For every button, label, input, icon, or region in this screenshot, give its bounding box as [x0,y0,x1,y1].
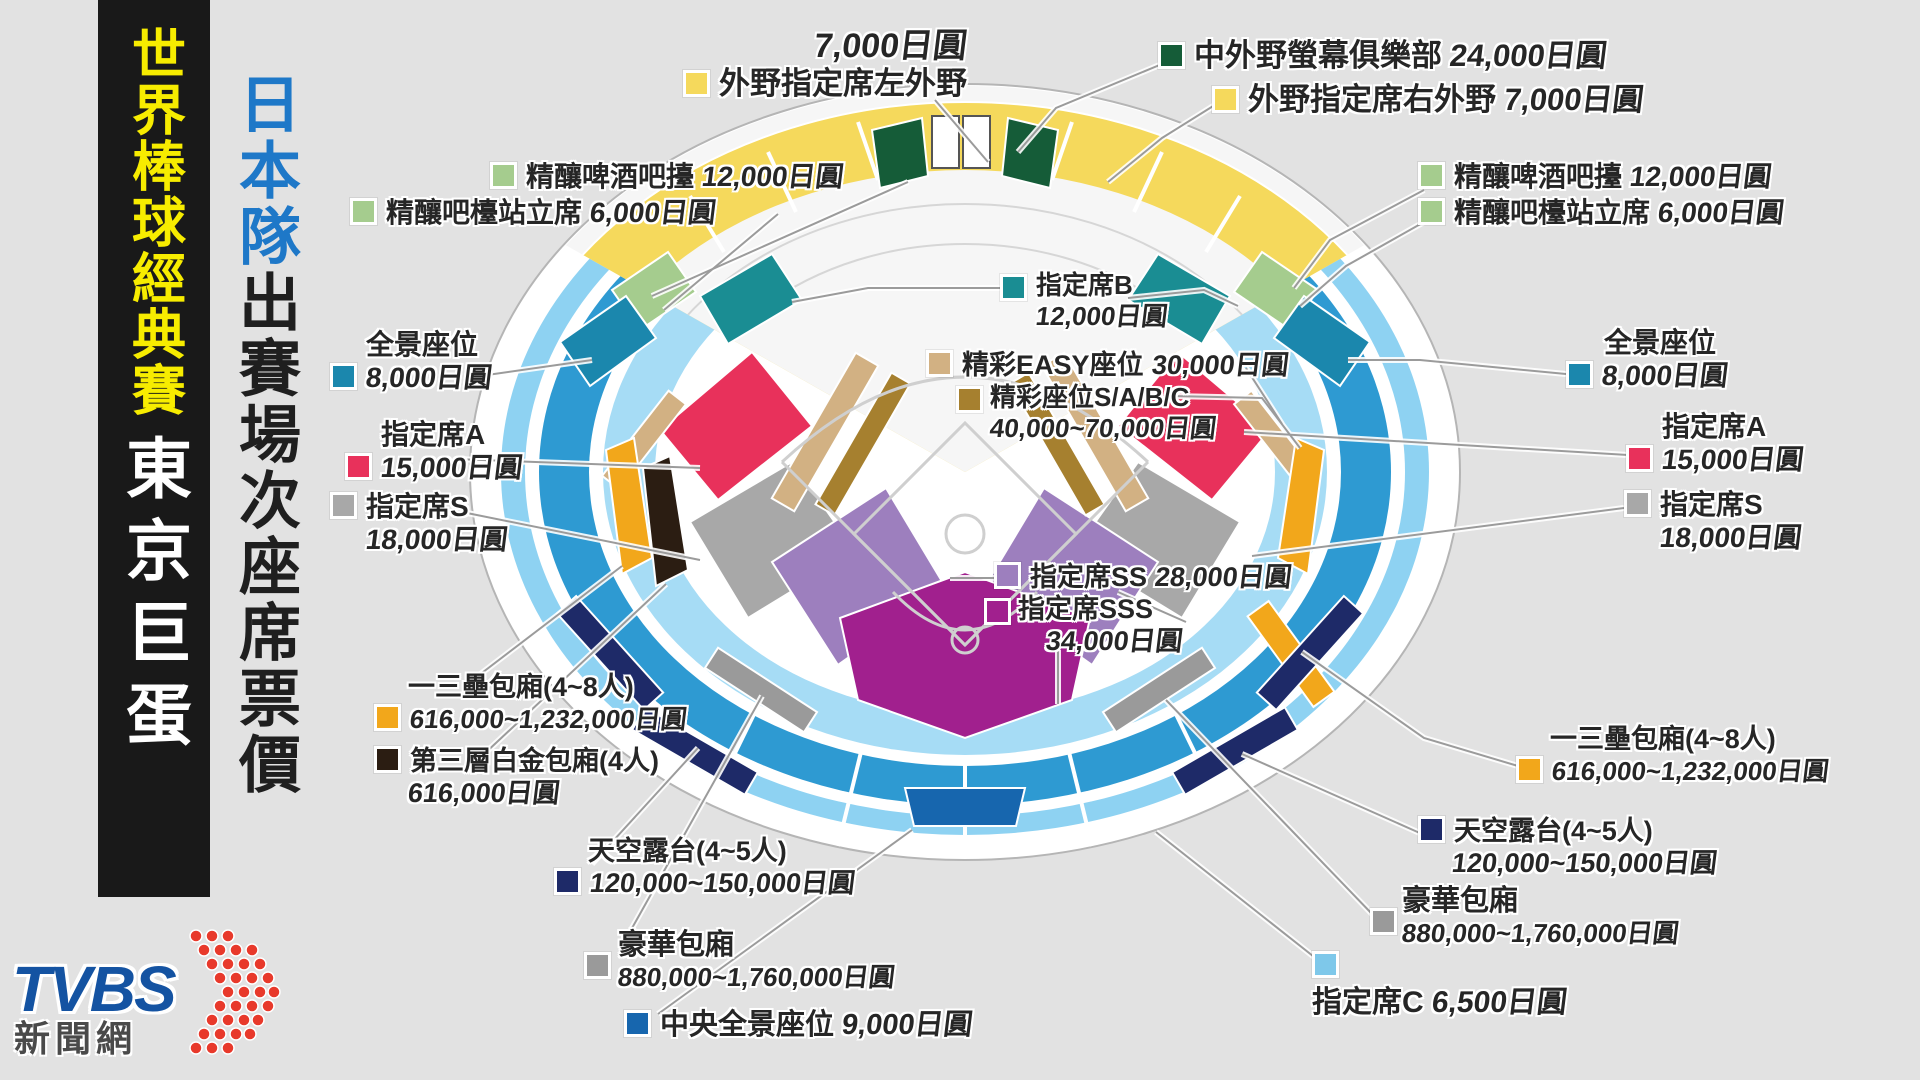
label-pano-left: 全景座位 8,000日圓 [330,328,492,394]
platinum-box-price: 616,000日圓 [406,778,562,810]
beer-bar-right-name: 精釀啤酒吧擡 [1454,161,1622,192]
beer-stand-right-price: 6,000日圓 [1656,196,1786,229]
label-seat-a-right: 指定席A 15,000日圓 [1626,410,1804,476]
seat-a-left-name: 指定席A [381,419,485,450]
central-pano-swatch [624,1010,651,1037]
zone-central-pano [905,788,1025,826]
beer-bar-left-price: 12,000日圓 [700,160,846,193]
label-seat-s-left: 指定席S 18,000日圓 [330,490,508,556]
label-seat-s-right: 指定席S 18,000日圓 [1624,488,1802,554]
label-beer-bar-left: 精釀啤酒吧擡12,000日圓 [490,160,844,193]
box13-left-price: 616,000~1,232,000日圓 [408,704,689,735]
lux-left-name: 豪華包廂 [618,929,734,961]
pano-left-name: 全景座位 [366,329,478,360]
seat-ss-name: 指定席SS [1030,562,1147,592]
pano-left-swatch [330,363,357,390]
tvbs-dots-icon [162,924,282,1064]
lf-outfield-swatch [683,70,710,97]
easy-seat-name: 精彩EASY座位 [962,350,1144,380]
seat-c-swatch [1312,951,1339,978]
seat-s-left-swatch [330,492,357,519]
seat-sss-price: 34,000日圓 [1044,626,1185,658]
sabc-seat-price: 40,000~70,000日圓 [988,413,1218,444]
title-bar: 世界棒球經典賽 東京巨蛋 [98,0,210,897]
box13-left-swatch [374,704,401,731]
seat-b-swatch [1000,274,1027,301]
page-title: 世界棒球經典賽 [115,26,194,418]
label-box13-right: 一三壘包廂(4~8人) 616,000~1,232,000日圓 [1516,724,1829,787]
pano-left-price: 8,000日圓 [364,361,494,394]
zone-screen-club-left [872,118,928,188]
tvbs-site-text: 新聞網 [14,1010,137,1062]
team-name: 日本隊 [229,72,298,270]
beer-stand-left-name: 精釀吧檯站立席 [386,197,582,228]
tvbs-logo: TVBS 新聞網 [12,944,312,1074]
seat-b-name: 指定席B [1036,270,1133,300]
beer-stand-left-price: 6,000日圓 [588,196,718,229]
platinum-box-swatch [374,746,401,773]
label-lux-left: 豪華包廂 880,000~1,760,000日圓 [584,928,895,993]
box13-left-name: 一三壘包廂(4~8人) [408,672,634,702]
sky-right-name: 天空露台(4~5人) [1454,816,1653,846]
label-beer-stand-left: 精釀吧檯站立席6,000日圓 [350,196,716,229]
box13-right-name: 一三壘包廂(4~8人) [1550,724,1776,754]
box13-right-price: 616,000~1,232,000日圓 [1550,756,1831,787]
label-seat-b: 指定席B 12,000日圓 [1000,270,1168,331]
label-lf-outfield: 7,000日圓 外野指定席左外野 [683,26,967,103]
beer-bar-left-swatch [490,162,517,189]
seat-c-name: 指定席C [1312,986,1424,1019]
seat-ss-swatch [994,562,1021,589]
beer-stand-right-swatch [1418,198,1445,225]
seat-s-left-price: 18,000日圓 [364,523,510,556]
pano-right-swatch [1566,361,1593,388]
label-screen-club: 中外野螢幕俱樂部24,000日圓 [1158,38,1607,75]
sky-left-price: 120,000~150,000日圓 [588,868,857,900]
sabc-seat-name: 精彩座位S/A/B/C [990,382,1189,412]
rf-outfield-price: 7,000日圓 [1502,82,1646,119]
seat-s-left-name: 指定席S [366,491,469,522]
label-seat-a-left: 指定席A 15,000日圓 [345,418,523,484]
pano-right-name: 全景座位 [1604,327,1716,358]
label-sky-right: 天空露台(4~5人) 120,000~150,000日圓 [1418,816,1717,880]
label-seat-sss: 指定席SSS 34,000日圓 [984,594,1183,658]
subtitle-column: 日本隊出賽場次座席票價 [218,72,308,798]
seat-a-right-name: 指定席A [1662,411,1766,442]
seat-c-price: 6,500日圓 [1429,985,1568,1020]
label-sky-left: 天空露台(4~5人) 120,000~150,000日圓 [554,836,855,900]
pano-right-price: 8,000日圓 [1600,359,1730,392]
easy-seat-price: 30,000日圓 [1150,350,1291,382]
beer-stand-right-name: 精釀吧檯站立席 [1454,197,1650,228]
seat-s-right-swatch [1624,490,1651,517]
label-box13-left: 一三壘包廂(4~8人) 616,000~1,232,000日圓 [374,672,687,735]
infographic-canvas: 世界棒球經典賽 東京巨蛋 日本隊出賽場次座席票價 7,000日圓 外野指定席左外… [0,0,1920,1080]
sabc-seat-swatch [956,386,983,413]
seat-a-left-swatch [345,453,372,480]
beer-bar-right-swatch [1418,162,1445,189]
lux-left-price: 880,000~1,760,000日圓 [616,962,897,993]
central-pano-price: 9,000日圓 [840,1008,975,1042]
beer-bar-left-name: 精釀啤酒吧擡 [526,161,694,192]
lux-right-name: 豪華包廂 [1402,885,1518,917]
seat-b-price: 12,000日圓 [1034,301,1169,332]
lux-left-swatch [584,952,611,979]
label-seat-ss: 指定席SS28,000日圓 [994,562,1292,594]
lf-outfield-price: 7,000日圓 [811,26,969,66]
lux-right-swatch [1370,908,1397,935]
seat-s-right-price: 18,000日圓 [1658,521,1804,554]
label-beer-bar-right: 精釀啤酒吧擡12,000日圓 [1418,160,1772,193]
lf-outfield-name: 外野指定席左外野 [719,66,967,101]
rf-outfield-name: 外野指定席右外野 [1248,82,1496,117]
platinum-box-name: 第三層白金包廂(4人) [410,746,659,776]
venue-title: 東京巨蛋 [106,434,202,762]
label-beer-stand-right: 精釀吧檯站立席6,000日圓 [1418,196,1784,229]
beer-stand-left-swatch [350,198,377,225]
easy-seat-swatch [926,350,953,377]
screen-club-name: 中外野螢幕俱樂部 [1194,38,1442,73]
sky-left-swatch [554,868,581,895]
rf-outfield-swatch [1212,86,1239,113]
label-easy-seat: 精彩EASY座位30,000日圓 [926,350,1288,382]
sky-right-swatch [1418,816,1445,843]
seat-a-right-price: 15,000日圓 [1660,443,1806,476]
seat-a-left-price: 15,000日圓 [379,451,525,484]
subtitle-text: 出賽場次座席票價 [229,270,298,798]
label-pano-right: 全景座位 8,000日圓 [1566,326,1728,392]
seat-ss-price: 28,000日圓 [1153,562,1294,594]
seat-sss-name: 指定席SSS [1018,594,1153,624]
zone-screen-club-right [1002,118,1058,188]
lux-right-price: 880,000~1,760,000日圓 [1400,918,1681,949]
label-platinum-box: 第三層白金包廂(4人) 616,000日圓 [374,746,659,810]
sky-left-name: 天空露台(4~5人) [588,836,787,866]
seat-s-right-name: 指定席S [1660,489,1763,520]
label-seat-c: 指定席C6,500日圓 [1312,948,1567,1021]
label-sabc-seat: 精彩座位S/A/B/C 40,000~70,000日圓 [956,382,1216,443]
box13-right-swatch [1516,756,1543,783]
seat-sss-swatch [984,598,1011,625]
label-central-pano: 中央全景座位9,000日圓 [624,1008,973,1042]
sky-right-price: 120,000~150,000日圓 [1450,848,1719,880]
label-lux-right: 豪華包廂 880,000~1,760,000日圓 [1370,884,1679,949]
central-pano-name: 中央全景座位 [660,1009,834,1041]
beer-bar-right-price: 12,000日圓 [1628,160,1774,193]
screen-club-price: 24,000日圓 [1448,38,1609,75]
label-rf-outfield: 外野指定席右外野7,000日圓 [1212,82,1644,119]
seat-a-right-swatch [1626,445,1653,472]
screen-club-swatch [1158,42,1185,69]
